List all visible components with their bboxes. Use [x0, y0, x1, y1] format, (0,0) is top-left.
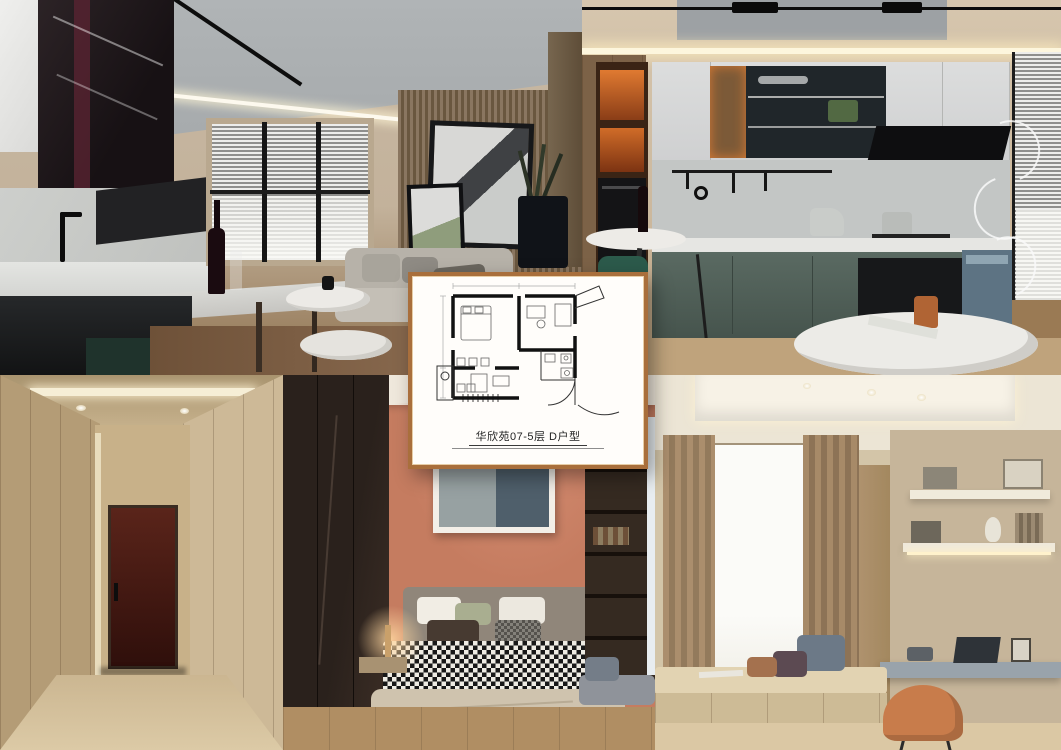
table-leg — [256, 302, 262, 372]
photo-frame — [1011, 638, 1031, 662]
sofa-pillow — [362, 254, 400, 282]
laptop — [953, 637, 1001, 663]
door-handle — [114, 583, 118, 601]
hanging-utensil — [686, 173, 689, 189]
shelf-underglow — [907, 552, 1051, 555]
window-sliver — [647, 417, 655, 675]
spotlight — [180, 408, 189, 414]
ceiling-recess — [695, 375, 1015, 421]
book-spines — [593, 527, 629, 545]
oven-handle — [602, 186, 642, 189]
led-cove — [582, 48, 1061, 54]
floorplan-card: 华欣苑07-5层 D户型 — [408, 272, 648, 469]
spotlight — [76, 405, 86, 411]
track-light-fixture — [732, 2, 778, 13]
display-shelf-line — [748, 126, 884, 128]
track-light-fixture — [882, 2, 922, 13]
hanging-pan — [694, 186, 708, 200]
shelf-vase — [985, 517, 1001, 542]
shelf-books — [1015, 513, 1043, 543]
steel-pot — [882, 212, 912, 236]
wood-floor — [283, 707, 655, 750]
black-faucet-spout — [60, 212, 82, 217]
floorplan-caption: 华欣苑07-5层 D户型 — [469, 430, 586, 446]
wine-glass — [230, 250, 242, 290]
kettle — [810, 208, 844, 236]
seat-pillow-rust — [747, 657, 777, 677]
spotlight — [867, 389, 876, 396]
door-leaf — [111, 508, 175, 666]
window-seat-base — [655, 693, 887, 727]
white-gloss-cabinet — [0, 0, 40, 152]
shelf-books — [911, 521, 941, 543]
interior-collage: 华欣苑07-5层 D户型 — [0, 0, 1061, 750]
window-mullion-h — [210, 190, 370, 194]
seat-pillow-plum — [773, 651, 807, 677]
cabinet-panel-line — [812, 256, 813, 334]
coffee-table-lower — [300, 330, 392, 360]
backlit-shelf-cell — [600, 128, 644, 172]
floating-shelf — [903, 543, 1055, 552]
track-light-rail — [582, 7, 1061, 10]
floating-desk — [880, 662, 1061, 678]
desk-item — [907, 647, 933, 661]
cabinet-panel-line — [732, 256, 733, 334]
seat-pillow — [585, 657, 619, 681]
backlit-shelf-cell — [600, 70, 644, 120]
hanging-utensil — [732, 173, 735, 193]
wine-bottle-body — [208, 228, 225, 294]
panel-highlight — [95, 433, 101, 677]
black-faucet — [60, 212, 65, 262]
floating-shelf — [910, 490, 1050, 499]
floorplan-drawing — [423, 280, 633, 430]
ceiling-light-slot — [30, 388, 255, 396]
utensil-rail — [672, 170, 832, 173]
table-lamp — [385, 625, 391, 657]
green-bottles — [828, 100, 858, 122]
open-wood-shelf — [710, 66, 746, 158]
shelf-decor-stack — [923, 467, 957, 489]
door-shadow — [100, 667, 186, 676]
floating-nightstand — [359, 657, 407, 673]
bar-table — [586, 228, 686, 250]
photo-hallway — [0, 375, 283, 750]
shelf-decor-frame — [1003, 459, 1043, 489]
floor — [655, 723, 1061, 750]
spotlight — [917, 394, 926, 401]
copper-cup — [914, 296, 938, 328]
plant-vase — [518, 196, 568, 268]
spotlight — [803, 383, 811, 389]
display-shelf-line — [748, 96, 884, 98]
coffee-table-item — [322, 276, 334, 290]
hanging-utensil — [764, 173, 767, 191]
floorplan-caption-rule — [452, 448, 604, 449]
photo-kitchen-green — [582, 0, 1061, 375]
wine-bottle — [638, 186, 648, 232]
photo-study — [655, 375, 1061, 750]
glassware-glint — [758, 76, 808, 84]
beige-curtain-left — [663, 435, 715, 690]
